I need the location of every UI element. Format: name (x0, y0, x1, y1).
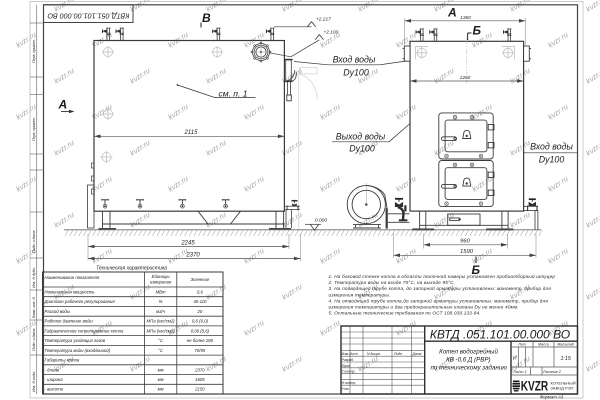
svg-text:2370: 2370 (185, 252, 200, 258)
svg-text:2150: 2150 (194, 387, 205, 392)
svg-text:И: И (513, 356, 517, 362)
svg-text:Формат А3: Формат А3 (540, 395, 564, 400)
svg-text:см. п. 1: см. п. 1 (219, 88, 248, 98)
svg-text:N докум: N докум (367, 352, 380, 356)
svg-text:измерения температуры и два пр: измерения температуры и два предохраните… (329, 305, 519, 310)
svg-text:Габариты котла: Габариты котла (45, 358, 80, 363)
svg-text:4. На отводящей трубе котла,д: 4. На отводящей трубе котла,до запорной … (329, 297, 549, 303)
svg-text:Лит: Лит (517, 343, 525, 347)
svg-text:измерения температуры.: измерения температуры. (329, 292, 391, 297)
svg-text:Значение: Значение (190, 277, 209, 282)
svg-text:не более 280: не более 280 (187, 338, 214, 343)
svg-text:Масса: Масса (538, 343, 549, 347)
svg-text:МВт: МВт (156, 290, 166, 295)
svg-text:Температура уходящих газов: Температура уходящих газов (45, 338, 106, 343)
svg-text:мм: мм (158, 387, 164, 392)
svg-text:Котел водогрейный: Котел водогрейный (439, 349, 498, 356)
svg-text:0,6 (6,0): 0,6 (6,0) (192, 319, 209, 324)
svg-text:1. На боковой стенке котла в: 1. На боковой стенке котла в области топ… (329, 273, 556, 279)
svg-text:1:15: 1:15 (560, 356, 571, 362)
svg-text:- высота: - высота (45, 387, 64, 392)
svg-text:Dy100: Dy100 (343, 68, 369, 78)
svg-text:Изм.Лист: Изм.Лист (342, 352, 358, 356)
svg-text:40-110: 40-110 (193, 299, 207, 304)
svg-text:20: 20 (197, 309, 203, 314)
svg-text:Диапазон рабочего регулировани: Диапазон рабочего регулирования (44, 299, 116, 304)
svg-text:Инв. N подл.: Инв. N подл. (32, 371, 36, 392)
svg-text:по техническому заданию: по техническому заданию (430, 364, 507, 371)
svg-text:В: В (202, 11, 211, 25)
svg-text:Утв.: Утв. (342, 387, 350, 391)
svg-text:Б: Б (473, 24, 482, 38)
svg-text:Гидравлическое сопротивление к: Гидравлическое сопротивление котла (45, 328, 125, 333)
svg-text:КВТД .051.101.00.000 ВО: КВТД .051.101.00.000 ВО (430, 328, 570, 342)
svg-text:Подп. и дата: Подп. и дата (32, 329, 36, 352)
svg-text:Т.контр.: Т.контр. (342, 370, 356, 374)
svg-text:Подп: Подп (394, 352, 402, 356)
svg-text:Вход воды: Вход воды (333, 55, 376, 65)
svg-text:КВ -0,6 Д (РВР): КВ -0,6 Д (РВР) (446, 356, 490, 363)
svg-text:1590: 1590 (460, 249, 474, 255)
svg-text:Расход воды: Расход воды (45, 309, 71, 314)
svg-text:МПа (кгс/см2): МПа (кгс/см2) (147, 319, 176, 324)
svg-text:м3/ч: м3/ч (156, 309, 166, 314)
svg-text:МПа (кгс/см2): МПа (кгс/см2) (147, 328, 176, 333)
svg-text:0,06 (0,6): 0,06 (0,6) (191, 328, 210, 333)
svg-text:А: А (58, 98, 68, 112)
svg-text:мм: мм (158, 377, 164, 382)
svg-text:Наименование показателя: Наименование показателя (45, 275, 101, 280)
svg-text:KVZR: KVZR (521, 379, 549, 394)
svg-text:Dy100: Dy100 (539, 155, 565, 165)
svg-text:+2.217: +2.217 (316, 16, 331, 22)
svg-text:960: 960 (460, 239, 470, 245)
svg-text:Выход воды: Выход воды (336, 132, 386, 142)
svg-text:мм: мм (158, 367, 164, 372)
svg-text:+2.100: +2.100 (324, 29, 339, 35)
svg-text:измерения: измерения (150, 280, 172, 285)
svg-text:1260: 1260 (460, 75, 471, 81)
svg-text:Дата: Дата (412, 352, 422, 356)
svg-text:Масштаб: Масштаб (557, 343, 575, 347)
svg-text:Перв. примен.: Перв. примен. (32, 117, 36, 141)
svg-text:2. Температура воды на входе: 2. Температура воды на входе 70°С, на вы… (328, 280, 456, 285)
svg-text:- ширина: - ширина (45, 377, 64, 382)
svg-text:Dy100: Dy100 (349, 144, 375, 154)
svg-text:Пров.: Пров. (342, 364, 351, 368)
svg-text:2115: 2115 (184, 130, 199, 136)
svg-text:1360: 1360 (460, 15, 471, 21)
svg-text:Взам. инв. N: Взам. инв. N (32, 297, 36, 318)
svg-text:Н.контр.: Н.контр. (342, 381, 356, 385)
svg-text:Разраб.: Разраб. (342, 358, 354, 362)
svg-text:ЗАВОД РЭП: ЗАВОД РЭП (551, 386, 574, 391)
svg-text:Подп. и дата: Подп. и дата (32, 231, 36, 254)
svg-text:Номинальная мощность: Номинальная мощность (45, 290, 96, 295)
svg-text:3. На подводящей трубе котла,: 3. На подводящей трубе котла, до запорно… (329, 285, 552, 291)
svg-text:5. Остальные технические треб: 5. Остальные технические требования по О… (329, 311, 481, 316)
svg-text:Рабочее давление воды: Рабочее давление воды (45, 319, 94, 324)
svg-text:2245: 2245 (180, 240, 195, 246)
svg-text:Вход воды: Вход воды (530, 142, 573, 152)
svg-text:Инв. N дубл.: Инв. N дубл. (32, 267, 36, 288)
svg-text:Единицы: Единицы (152, 274, 171, 279)
svg-text:70/95: 70/95 (195, 348, 206, 353)
svg-text:Перв. примен.: Перв. примен. (32, 39, 36, 63)
svg-text:Лист 1: Лист 1 (512, 369, 527, 374)
svg-text:%: % (159, 299, 163, 304)
svg-text:0,6: 0,6 (197, 290, 204, 295)
svg-text:А: А (447, 6, 457, 20)
svg-text:1605: 1605 (195, 377, 205, 382)
svg-text:Листов 2: Листов 2 (542, 369, 562, 374)
svg-text:0.000: 0.000 (315, 218, 327, 224)
svg-text:КВТД.051.101.00.000 ВО: КВТД.051.101.00.000 ВО (47, 12, 129, 21)
svg-text:Температура воды (вход/выход): Температура воды (вход/выход) (45, 348, 111, 353)
svg-text:- длина: - длина (45, 367, 60, 372)
svg-text:Техническая характеристика: Техническая характеристика (96, 266, 167, 272)
svg-text:2370: 2370 (194, 367, 205, 372)
